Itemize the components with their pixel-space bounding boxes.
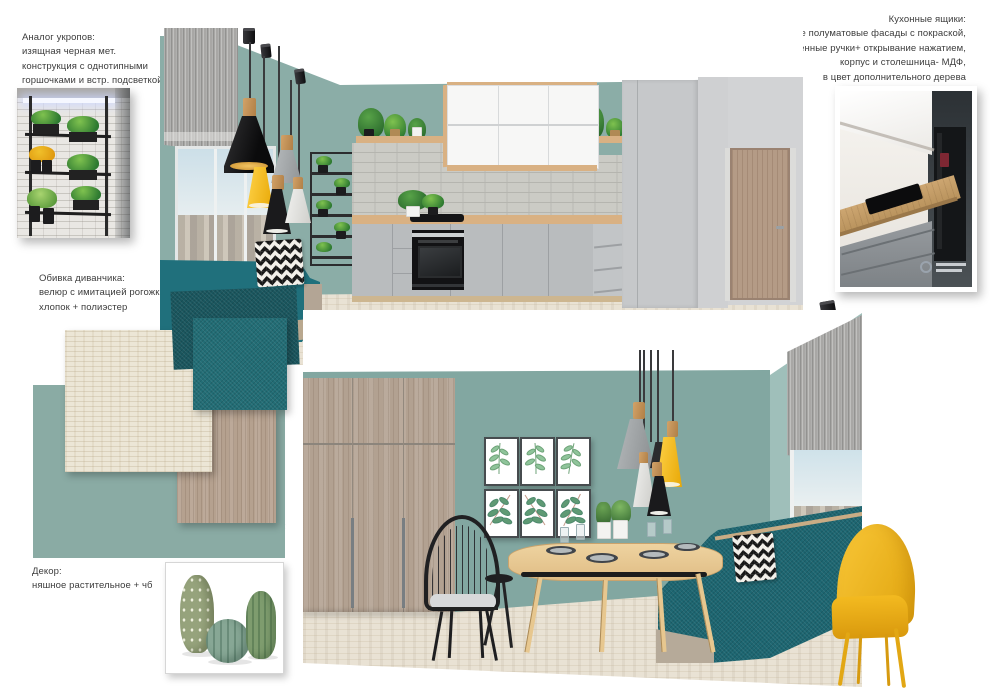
annotation-line: Обивка диванчика:: [39, 272, 168, 286]
plinth: [352, 296, 622, 302]
annotation-line: изящная черная мет.: [22, 45, 163, 59]
drinking-glass: [647, 522, 656, 537]
vertical-garden-photo: [17, 88, 130, 238]
flower-pot: [42, 160, 52, 173]
botanical-print: [520, 437, 555, 486]
pendant-wood-cap: [633, 402, 645, 419]
cabinet-seam: [548, 224, 549, 298]
pendant-cord: [298, 84, 300, 180]
oven-controls: [418, 240, 458, 243]
watermark-text-bar: [936, 269, 962, 272]
cactus-vase-sphere: [206, 619, 250, 663]
annotation-line: конструкция с однотипными: [22, 60, 163, 74]
pendant-wood-cap: [667, 421, 678, 437]
cabinet-seam: [498, 86, 499, 168]
tall-cabinet: [622, 80, 698, 308]
door-handle: [776, 226, 784, 229]
cabinet-seam: [448, 124, 598, 126]
annotation-sofa-upholstery: Обивка диванчика: велюр с имитацией рого…: [39, 272, 168, 315]
table-cactus: [596, 502, 611, 524]
rack-pot: [336, 187, 346, 195]
botanical-print: [520, 489, 555, 538]
door-jamb: [790, 148, 796, 302]
table-frame: [521, 572, 707, 577]
zigzag-pillow: [254, 238, 304, 287]
counter-pot: [428, 207, 438, 215]
concrete-strip: [17, 88, 130, 98]
botanical-print: [484, 437, 519, 486]
chair-wires: [432, 525, 492, 605]
yellow-chair-leg: [885, 634, 891, 686]
rack-pot: [318, 209, 328, 217]
planter-box: [33, 124, 59, 134]
cabinet-seam: [502, 224, 503, 298]
annotation-line: Декор:: [32, 565, 153, 579]
watermark: [920, 259, 968, 281]
wardrobe-shadow: [303, 610, 455, 617]
corner-cabinet: [593, 224, 622, 298]
botanical-print: [556, 437, 591, 486]
feathery-plant: [27, 188, 57, 208]
glass-edge: [115, 88, 130, 238]
pendant-wood-cap: [652, 462, 662, 477]
drinking-glass: [560, 527, 569, 543]
moodboard-page: Аналог укропов: изящная черная мет. конс…: [0, 0, 990, 694]
base-cabinets: [352, 224, 622, 298]
cacti-decor-photo: [165, 562, 284, 674]
lamp-rim: [650, 511, 668, 515]
botanical-print: [484, 489, 519, 538]
drinking-glass: [576, 524, 585, 540]
pendant-wood-cap: [293, 177, 303, 190]
annotation-decor: Декор: няшное растительное + чб: [32, 565, 153, 594]
place-setting: [586, 553, 618, 563]
wardrobe-handle: [402, 518, 405, 608]
place-setting: [639, 550, 669, 559]
wardrobe-seam: [303, 443, 455, 445]
banquette-sofa: [648, 498, 862, 666]
kitchen-photo: [835, 86, 977, 292]
lamp-rim: [249, 203, 271, 208]
pendant-wood-cap: [243, 98, 256, 117]
red-object: [940, 153, 949, 167]
lamp-rim: [266, 229, 288, 233]
oven-window: [418, 246, 462, 278]
roman-shade: [787, 313, 862, 473]
dining-render: [303, 310, 862, 690]
tall-cabinet-side: [698, 77, 728, 308]
annotation-line: няшное растительное + чб: [32, 579, 153, 593]
ceiling-mount: [260, 44, 271, 59]
table-pot: [613, 520, 628, 539]
counter-pot: [406, 206, 420, 217]
upper-cabinets: [447, 85, 599, 169]
roman-shade: [164, 28, 238, 155]
annotation-line: Кухонные ящики:: [771, 13, 966, 27]
oven-strip: [412, 284, 464, 287]
pendant-cord: [639, 350, 641, 402]
pendant-wood-cap: [639, 452, 648, 464]
drinking-glass: [663, 519, 672, 534]
cabinet-seam: [637, 80, 638, 308]
cabinet-seam: [392, 224, 393, 298]
pendant-cord: [249, 42, 251, 99]
pendant-wood-cap: [272, 175, 284, 190]
wardrobe-handle: [351, 518, 354, 608]
oven: [412, 230, 464, 290]
cactus-vase-oval: [246, 591, 276, 659]
interior-door: [730, 148, 790, 300]
annotation-line: хлопок + полиэстер: [39, 301, 168, 315]
planter-box: [73, 200, 99, 210]
rack-pot: [318, 165, 328, 173]
planter-box: [69, 132, 97, 142]
flower-pot: [43, 208, 54, 224]
place-setting: [674, 543, 700, 551]
led-strip: [23, 98, 115, 103]
ceiling-mount: [294, 68, 306, 84]
watermark-text-bar: [936, 263, 966, 266]
pendant-wood-cap: [281, 135, 293, 151]
shade-fold: [164, 132, 238, 141]
yellow-chair-leg: [894, 628, 906, 688]
pendant-cord: [672, 350, 674, 421]
flower-pot: [29, 206, 40, 222]
annotation-planter-analog: Аналог укропов: изящная черная мет. конс…: [22, 31, 163, 89]
place-setting: [546, 546, 576, 555]
cabinet-wood-bottom: [447, 165, 597, 171]
planter-box: [69, 170, 97, 180]
pendant-cord: [650, 350, 652, 442]
watermark-logo-icon: [920, 261, 932, 273]
cabinet-seam: [548, 86, 549, 168]
annotation-line: велюр с имитацией рогожки/: [39, 286, 168, 300]
rack-pot: [336, 231, 346, 239]
oven-handle: [412, 233, 464, 237]
pendant-cord: [290, 80, 292, 138]
annotation-line: Аналог укропов:: [22, 31, 163, 45]
teal-fabric-swatch: [193, 318, 287, 410]
flower-pot: [31, 160, 41, 173]
table-pot: [597, 522, 611, 539]
annotation-line: горшочками и встр. подсветкой: [22, 74, 163, 88]
zigzag-pillow: [732, 532, 777, 582]
